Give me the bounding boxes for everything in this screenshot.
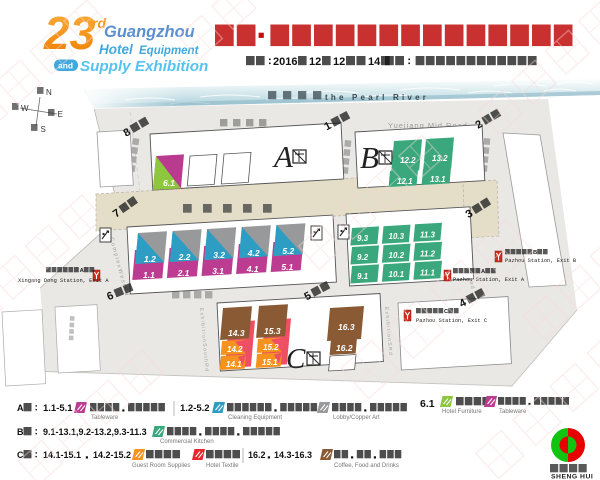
svg-text:Commercial Kitchen: Commercial Kitchen — [160, 439, 214, 445]
svg-text:4.1: 4.1 — [246, 264, 259, 274]
svg-text:2.2: 2.2 — [178, 252, 191, 262]
svg-text:14.2-15.2: 14.2-15.2 — [93, 450, 131, 460]
svg-text:1.2: 1.2 — [144, 254, 156, 264]
svg-text:SHENG HUI: SHENG HUI — [551, 474, 593, 480]
svg-text:11.1: 11.1 — [420, 268, 436, 277]
svg-text:5.1: 5.1 — [281, 262, 293, 272]
svg-text:A: A — [17, 403, 24, 413]
svg-text:3.2: 3.2 — [213, 250, 225, 260]
svg-text:15.2: 15.2 — [263, 343, 279, 352]
svg-text:14.1: 14.1 — [226, 360, 242, 369]
svg-text:6.1: 6.1 — [420, 398, 435, 410]
svg-text:Hotel: Hotel — [99, 42, 133, 57]
svg-text:Cleaning Equipment: Cleaning Equipment — [228, 415, 282, 421]
svg-text:Pazhou Station, Exit A: Pazhou Station, Exit A — [453, 277, 525, 283]
svg-text:Xingang Dong Station, Exit A: Xingang Dong Station, Exit A — [18, 278, 109, 284]
svg-text:Tableware: Tableware — [499, 409, 527, 415]
svg-text:3.1: 3.1 — [212, 266, 224, 276]
svg-text:S: S — [41, 125, 46, 134]
svg-text:4.2: 4.2 — [247, 248, 260, 258]
svg-text:14: 14 — [368, 56, 381, 68]
svg-text:2016: 2016 — [273, 56, 297, 68]
svg-text:B: B — [360, 140, 379, 175]
svg-text:14.2: 14.2 — [227, 345, 243, 354]
svg-text:12: 12 — [309, 56, 321, 68]
svg-text:15.1: 15.1 — [262, 358, 278, 367]
svg-text:6.1: 6.1 — [163, 178, 175, 188]
svg-text:Coffee, Food and Drinks: Coffee, Food and Drinks — [334, 463, 399, 469]
svg-text:W: W — [21, 104, 29, 113]
svg-text:2.1: 2.1 — [177, 268, 190, 278]
svg-text:Hotel Furniture: Hotel Furniture — [442, 409, 482, 415]
svg-text:B: B — [533, 250, 537, 256]
svg-text:1.2-5.2: 1.2-5.2 — [180, 403, 210, 414]
svg-text:11.3: 11.3 — [420, 230, 436, 239]
svg-text:12: 12 — [333, 56, 345, 68]
svg-text:14.3: 14.3 — [228, 328, 245, 338]
svg-text:9.1: 9.1 — [357, 272, 369, 281]
svg-text:Lobby/Copper Art: Lobby/Copper Art — [333, 415, 380, 421]
svg-text:Hotel Textile: Hotel Textile — [206, 463, 239, 469]
svg-text:A: A — [272, 139, 294, 174]
svg-text:B: B — [17, 427, 24, 437]
svg-text:Supply Exhibition: Supply Exhibition — [80, 58, 208, 75]
svg-text:10.1: 10.1 — [389, 270, 405, 279]
svg-text:1.1: 1.1 — [143, 270, 155, 280]
svg-text:11.2: 11.2 — [420, 249, 436, 258]
svg-text:1.1-5.1: 1.1-5.1 — [43, 403, 73, 414]
svg-text:14.3-16.3: 14.3-16.3 — [274, 450, 312, 460]
svg-text:C: C — [17, 450, 24, 460]
svg-text:E: E — [58, 110, 63, 119]
svg-text:15.3: 15.3 — [264, 326, 281, 336]
svg-text:13.1: 13.1 — [430, 175, 446, 184]
svg-text:16.2: 16.2 — [336, 343, 353, 353]
svg-text:5.2: 5.2 — [282, 246, 294, 256]
svg-text:the Pearl River: the Pearl River — [325, 93, 429, 102]
svg-text:9.3: 9.3 — [357, 234, 369, 243]
svg-text:9.2: 9.2 — [357, 253, 369, 262]
svg-text:10.3: 10.3 — [389, 232, 405, 241]
svg-text:N: N — [46, 88, 52, 97]
svg-text:Guest Room Supplies: Guest Room Supplies — [132, 463, 190, 469]
svg-text:16.2: 16.2 — [248, 450, 266, 460]
svg-text:C: C — [286, 343, 306, 375]
svg-text:10.2: 10.2 — [389, 251, 405, 260]
svg-text:16.3: 16.3 — [338, 322, 355, 332]
